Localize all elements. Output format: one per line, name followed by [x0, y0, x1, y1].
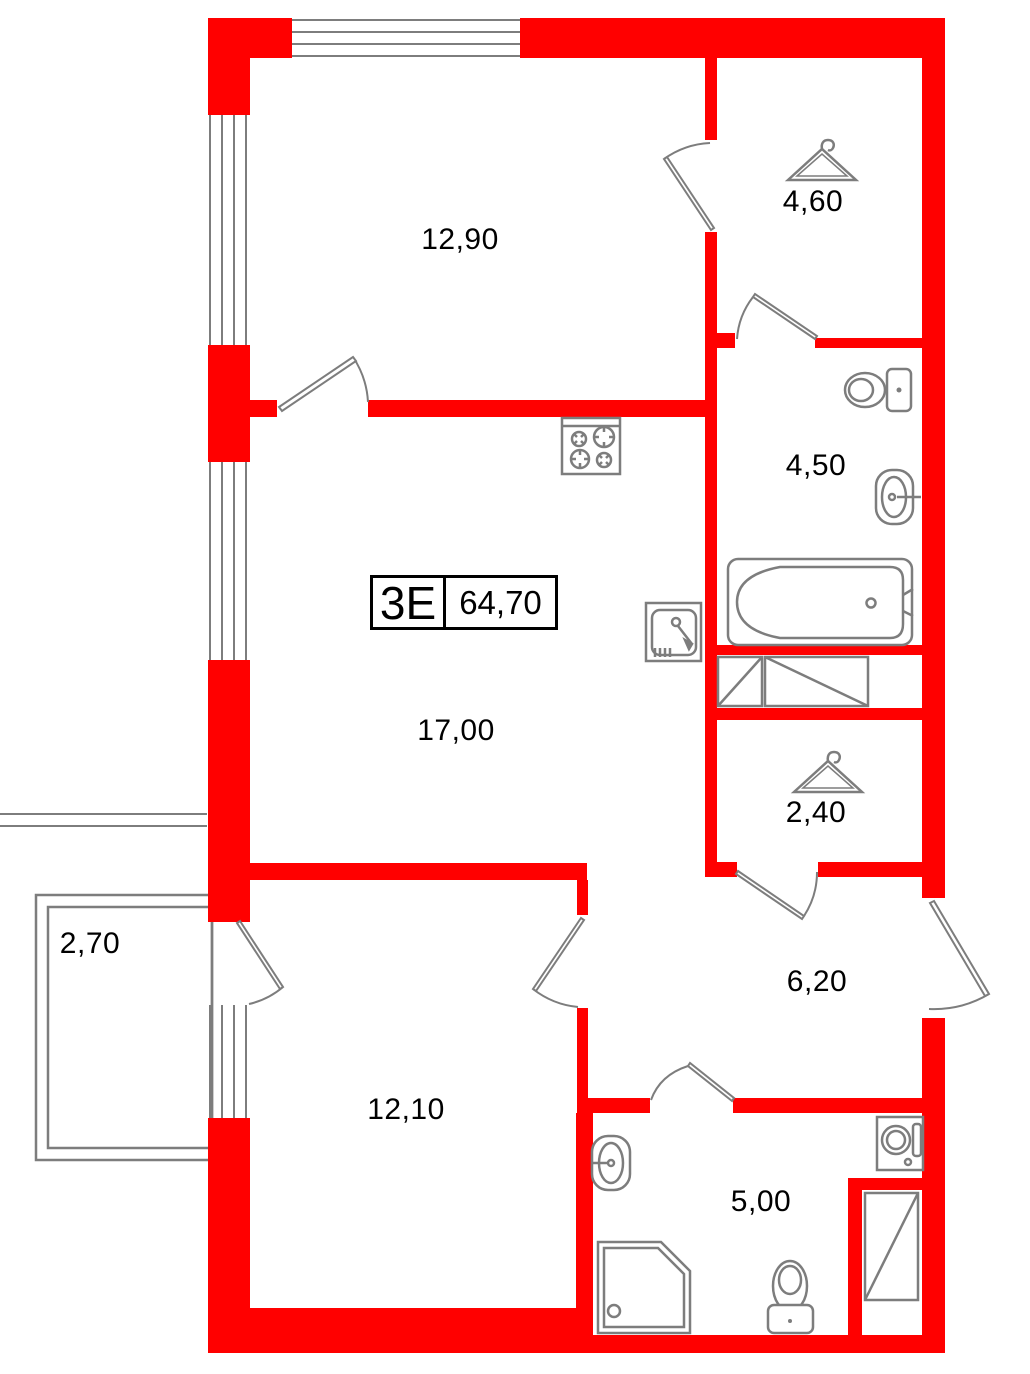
window-left-2 — [210, 462, 246, 660]
floor-plan: 12,90 4,60 4,50 17,00 2,40 6,20 2,70 12,… — [0, 0, 1030, 1374]
unit-title-box: 3Е 64,70 — [370, 575, 558, 630]
toilet-icon — [845, 369, 911, 411]
area-label-wardrobe: 4,60 — [783, 185, 843, 219]
area-label-kitchen-living: 17,00 — [417, 714, 495, 748]
vent-shaft-bathroom — [865, 1193, 918, 1300]
hanger-icon — [794, 752, 862, 792]
door-entrance — [929, 901, 989, 1009]
area-label-bathroom-master: 4,50 — [786, 449, 846, 483]
kitchen-sink-icon — [646, 603, 701, 661]
bathtub-icon — [728, 559, 913, 645]
neighbor-wall-line — [0, 814, 207, 826]
area-label-closet: 2,40 — [786, 796, 846, 830]
door-bedroom-bottom — [533, 918, 584, 1007]
door-bathroom-bottom — [651, 1063, 734, 1101]
door-balcony — [237, 921, 283, 1004]
area-label-balcony: 2,70 — [60, 927, 120, 961]
door-bedroom-wardrobe — [664, 143, 714, 230]
door-wardrobe-bathroom — [737, 294, 817, 339]
area-label-bathroom: 5,00 — [731, 1185, 791, 1219]
sink-icon — [592, 1136, 630, 1190]
area-label-bedroom-top: 12,90 — [421, 223, 499, 257]
area-label-hallway: 6,20 — [787, 965, 847, 999]
unit-type-label: 3Е — [373, 578, 446, 627]
window-balcony — [210, 1005, 246, 1118]
floor-plan-drawing — [0, 0, 1030, 1374]
hanger-icon — [788, 140, 856, 180]
toilet-icon — [768, 1261, 813, 1333]
total-area-label: 64,70 — [446, 578, 555, 627]
door-bedroom-top — [279, 357, 368, 411]
area-label-bedroom: 12,10 — [367, 1093, 445, 1127]
stove-icon — [562, 418, 620, 474]
window-left-1 — [210, 115, 246, 345]
window-top — [292, 20, 520, 56]
shower-icon — [598, 1242, 690, 1333]
door-closet — [736, 871, 817, 919]
vent-shaft-middle — [718, 657, 868, 706]
sink-icon — [876, 470, 921, 524]
washing-machine-icon — [877, 1117, 923, 1170]
